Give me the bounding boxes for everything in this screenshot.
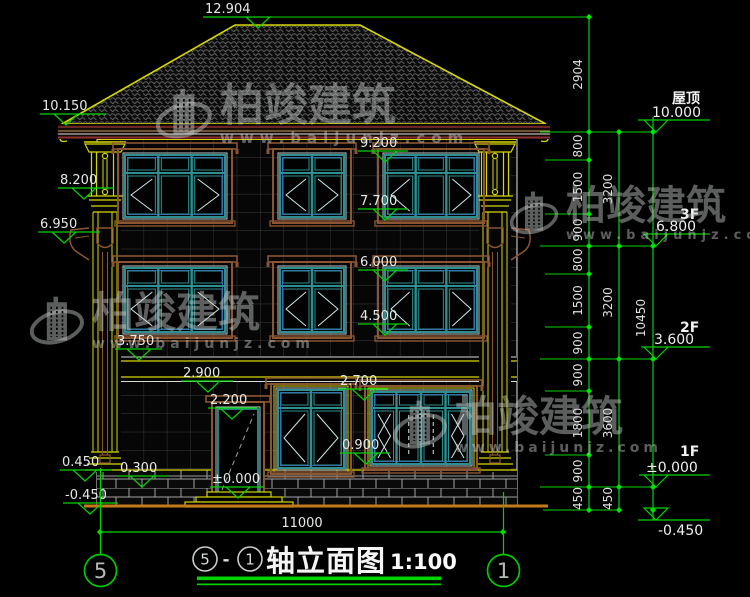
cad-elevation-drawing: 12.90410.1508.2006.9509.2007.7006.0004.5… [0,0,750,593]
floor-level-marker [639,475,710,487]
elevation-label: 2.200 [210,393,247,408]
corbel-bracket [70,228,89,260]
elevation-canvas: 12.90410.1508.2006.9509.2007.7006.0004.5… [0,0,750,593]
dimension-tick [586,243,592,249]
elevation-label: 4.500 [360,309,397,324]
dimension-tick [586,356,592,362]
dimension-segment-label: 3600 [601,408,615,439]
dimension-segment-label: 450 [601,487,615,510]
window [360,380,482,473]
dimension-segment-label: 450 [571,487,585,510]
dimension-tick [616,129,622,135]
floor-name-label: 1F [680,444,699,460]
dimension-segment-label: 900 [571,219,585,242]
floor-level-marker [641,347,710,359]
dimension-tick [616,507,622,513]
floor-level-marker [638,120,710,132]
floor-elevation-label: 10.000 [652,105,701,121]
dimension-segment-label: 800 [571,249,585,272]
dimension-tick [586,388,592,394]
brick-plinth [97,470,517,505]
floor-level-marker [638,508,710,520]
eave-band [58,124,550,139]
title-separator: - [222,550,229,570]
drawing-title: 轴立面图 [266,544,386,578]
elevation-label: 2.700 [340,374,377,389]
elevation-label: 9.200 [360,136,397,151]
elevation-label: 6.000 [360,255,397,270]
dimension-tick [586,452,592,458]
dimension-tick [586,507,592,513]
dimension-tick [586,324,592,330]
dimension-segment-label: 3200 [601,287,615,318]
axis-bubble-5-label: 5 [94,559,107,583]
title-underline-thin [197,584,441,586]
dimension-tick [616,484,622,490]
dimension-tick [586,157,592,163]
overall-width-label: 11000 [281,516,322,531]
elevation-label: 7.700 [360,194,397,209]
elevation-label: 0.300 [120,461,157,476]
dimension-segment-label: 2904 [571,59,585,90]
elevation-label: 8.200 [60,173,97,188]
elevation-label: 6.950 [40,217,77,232]
title-axis-to: 1 [245,551,255,569]
dimension-segment-label: 800 [571,135,585,158]
dimension-tick [586,211,592,217]
dimension-tick [586,14,592,20]
floor-elevation-label: ±0.000 [646,460,698,476]
dimension-segment-label: 3200 [601,174,615,205]
dimension-tick [616,356,622,362]
hip-roof [58,25,550,142]
elevation-label: 2.900 [183,366,220,381]
floor-elevation-label: 6.800 [656,219,696,235]
elevation-label: 0.450 [62,455,99,470]
window [268,143,356,226]
elevation-label: 12.904 [205,2,251,17]
window [113,143,237,226]
elevation-label: 0.900 [342,438,379,453]
window [266,378,356,477]
dimension-tick [586,129,592,135]
overall-height-label: 10450 [634,299,648,337]
elevation-label: 3.750 [117,334,154,349]
floor-elevation-label: 3.600 [654,332,694,348]
dimension-tick [616,243,622,249]
dimension-segment-label: 900 [571,332,585,355]
title-block: 5 - 1 轴立面图 1:100 [193,544,457,585]
window [373,143,489,226]
dimension-segment-label: 1500 [571,285,585,316]
title-underline-thick [197,577,441,581]
window [268,256,356,341]
corner-pilaster [474,142,530,472]
dimension-segment-label: 1500 [571,172,585,203]
axis-bubble-1-label: 1 [497,559,510,583]
dimension-tick [586,484,592,490]
elevation-label: 10.150 [42,99,88,114]
window [113,256,237,341]
dimension-segment-label: 900 [571,460,585,483]
floor-elevation-label: -0.450 [658,523,703,539]
dimension-segment-label: 1800 [571,408,585,439]
elevation-label: ±0.000 [212,472,260,487]
drawing-scale: 1:100 [390,550,457,574]
dimension-segment-label: 900 [571,364,585,387]
title-axis-from: 5 [200,551,210,569]
dimension-tick [586,271,592,277]
